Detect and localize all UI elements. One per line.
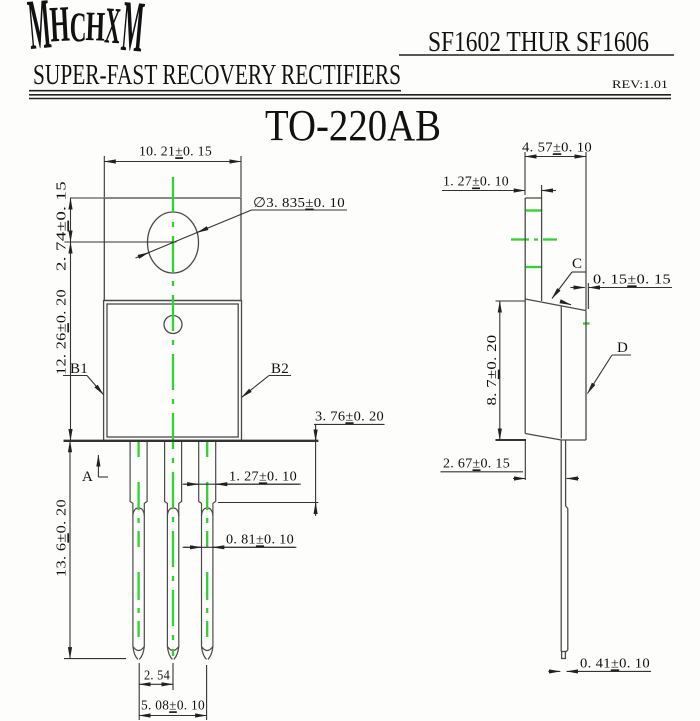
svg-text:0. 15±0. 15: 0. 15±0. 15 <box>593 273 671 288</box>
svg-text:D: D <box>617 340 628 356</box>
svg-text:C: C <box>70 6 87 52</box>
svg-text:B2: B2 <box>271 361 289 377</box>
svg-text:A: A <box>82 469 93 485</box>
svg-text:H: H <box>85 3 106 50</box>
svg-text:C: C <box>572 256 582 272</box>
svg-text:0. 41±0. 10: 0. 41±0. 10 <box>580 657 650 672</box>
svg-text:∅3. 835±0. 10: ∅3. 835±0. 10 <box>253 196 345 211</box>
svg-text:H: H <box>48 0 70 53</box>
svg-text:13. 6±0. 20: 13. 6±0. 20 <box>55 499 70 577</box>
svg-text:1. 27±0. 10: 1. 27±0. 10 <box>229 470 297 485</box>
svg-text:TO-220AB: TO-220AB <box>265 101 441 150</box>
svg-text:1. 27±0. 10: 1. 27±0. 10 <box>443 175 509 190</box>
svg-text:SF1602 THUR SF1606: SF1602 THUR SF1606 <box>428 27 649 58</box>
svg-text:0. 81±0. 10: 0. 81±0. 10 <box>226 533 294 548</box>
svg-text:REV:1.01: REV:1.01 <box>612 77 668 91</box>
svg-text:12. 26±0. 20: 12. 26±0. 20 <box>55 289 70 375</box>
svg-text:SUPER-FAST RECOVERY RECTIFIERS: SUPER-FAST RECOVERY RECTIFIERS <box>33 59 401 91</box>
svg-text:2. 54: 2. 54 <box>144 669 170 684</box>
svg-text:B1: B1 <box>70 361 88 377</box>
svg-text:2. 74±0. 15: 2. 74±0. 15 <box>55 181 70 271</box>
svg-text:8. 7±0. 20: 8. 7±0. 20 <box>485 335 500 406</box>
svg-text:2. 67±0. 15: 2. 67±0. 15 <box>443 457 510 472</box>
